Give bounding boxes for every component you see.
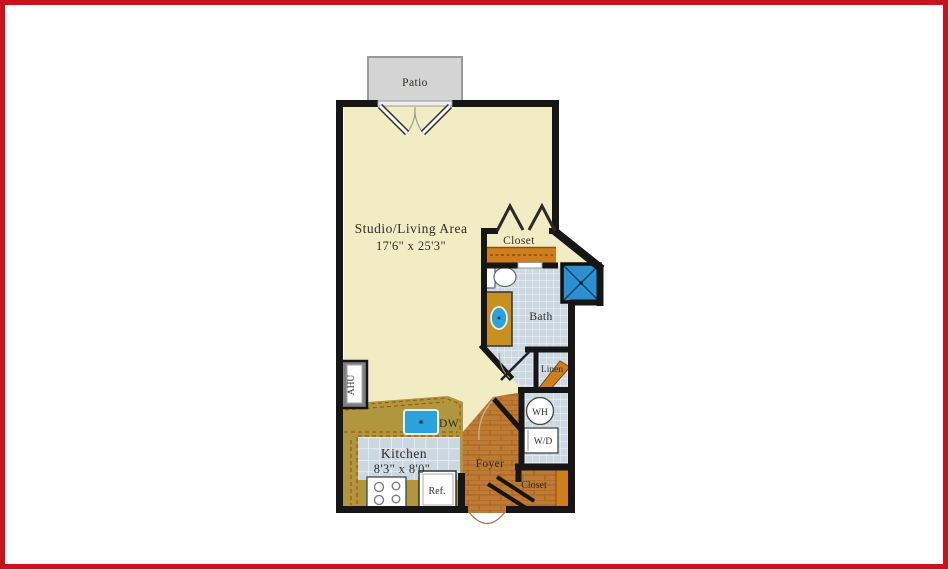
toilet-fixture [486,266,516,288]
upper-closet-label: Closet [503,235,535,247]
bath-label: Bath [529,311,552,323]
stove-fixture [367,477,406,510]
water-heater-label: WH [532,408,548,418]
floor-plan-frame: Patio [0,0,948,569]
linen-label: Linen [541,365,563,375]
ahu-label: AHU [347,375,357,396]
shower-fixture [562,264,600,302]
patio-area: Patio [368,57,462,103]
foyer-label: Foyer [476,458,505,470]
refrigerator-label: Ref. [429,486,446,497]
bath-cased-opening [518,263,542,269]
studio-label: Studio/Living Area [355,221,468,236]
kitchen-dimensions: 8'3" x 8'0" [374,462,431,476]
upper-closet-area [487,247,556,264]
vanity-sink-fixture [486,292,512,346]
dishwasher-label: DW [439,418,459,430]
floor-plan-canvas: Patio [5,5,943,564]
studio-dimensions: 17'6" x 25'3" [376,239,446,253]
patio-label: Patio [402,77,428,89]
entry-closet-label: Closet [521,480,547,491]
washer-dryer-label: W/D [534,437,553,447]
kitchen-faucet-icon [419,420,423,424]
kitchen-label: Kitchen [381,446,427,461]
entry-door-swing-arc [469,512,505,524]
